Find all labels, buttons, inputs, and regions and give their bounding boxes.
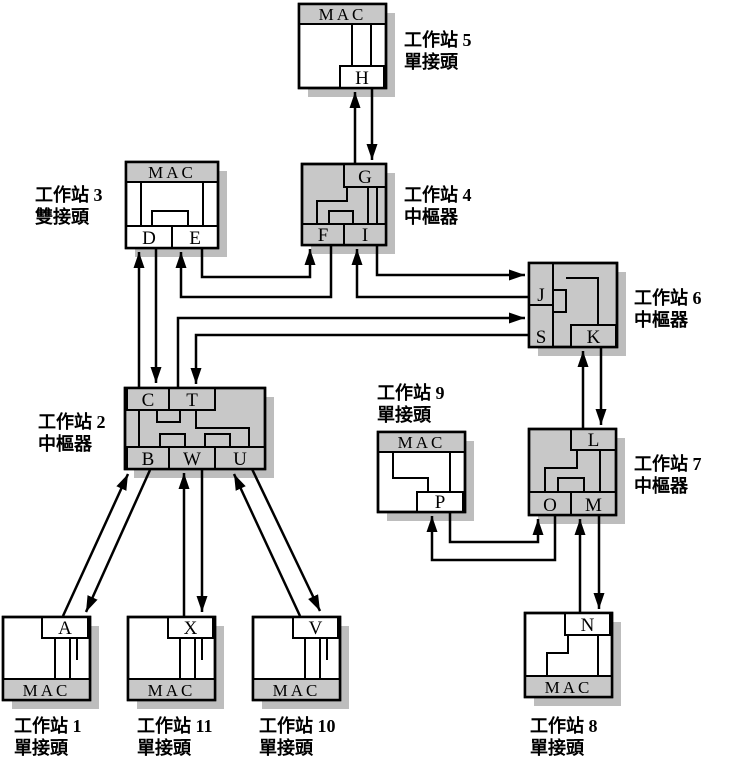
station-ws9-name: 工作站 9	[377, 382, 445, 403]
port-V-label: V	[309, 618, 323, 639]
port-T-label: T	[186, 390, 198, 411]
station-ws6-path-rect	[553, 290, 566, 312]
station-ws5-mac-label: MAC	[319, 5, 367, 24]
port-I-label: I	[362, 225, 368, 246]
station-ws2-type: 中樞器	[38, 433, 93, 454]
station-ws6: JSK	[529, 263, 617, 348]
station-ws10: MACV	[253, 617, 340, 700]
station-ws3-mac-label: MAC	[148, 163, 196, 182]
station-ws3: MACDE	[126, 162, 218, 249]
port-D-label: D	[142, 228, 156, 249]
station-ws2-path-rect	[157, 410, 180, 422]
station-ws11: MACX	[128, 617, 215, 700]
station-ws3-type: 雙接頭	[35, 206, 90, 227]
station-ws1-name: 工作站 1	[14, 715, 82, 736]
station-ws8-type: 單接頭	[530, 737, 585, 758]
station-ws10-mac-label: MAC	[273, 681, 321, 700]
connection-V-to-U-arrow	[234, 474, 300, 616]
port-O-label: O	[543, 495, 557, 516]
station-ws2: CTBWU	[125, 388, 265, 470]
station-ws10-type: 單接頭	[259, 737, 314, 758]
port-K-label: K	[587, 327, 601, 348]
connection-B-to-A-arrow	[86, 470, 150, 612]
station-ws9-type: 單接頭	[377, 404, 432, 425]
port-L-label: L	[588, 430, 600, 451]
station-ws5-type: 單接頭	[404, 51, 459, 72]
station-ws11-name: 工作站 11	[137, 715, 213, 736]
port-W-label: W	[183, 449, 201, 470]
port-J-label: J	[537, 285, 544, 306]
connection-S-to-T-arrow	[196, 335, 529, 384]
port-C-label: C	[142, 390, 155, 411]
station-ws10-name: 工作站 10	[259, 715, 336, 736]
station-ws9: MACP	[378, 432, 465, 513]
port-M-label: M	[585, 495, 602, 516]
station-ws11-type: 單接頭	[137, 737, 192, 758]
station-ws7: LOM	[529, 429, 616, 516]
station-ws3-name: 工作站 3	[35, 184, 103, 205]
connection-J-to-I-arrow	[357, 249, 529, 297]
port-E-label: E	[189, 228, 201, 249]
station-ws4-name: 工作站 4	[404, 184, 472, 205]
connection-A-to-B-arrow	[63, 474, 128, 616]
station-ws3-path-rect	[152, 211, 188, 226]
station-ws11-mac-label: MAC	[148, 681, 196, 700]
station-ws1: MACA	[3, 617, 90, 700]
station-ws7-type: 中樞器	[634, 475, 689, 496]
port-N-label: N	[581, 615, 595, 636]
connection-U-to-V-arrow	[252, 469, 320, 611]
port-G-label: G	[358, 167, 372, 188]
station-ws2-path-rect	[160, 434, 185, 447]
port-A-label: A	[58, 618, 72, 639]
station-ws6-type: 中樞器	[634, 309, 689, 330]
port-F-label: F	[318, 225, 329, 246]
station-ws6-name: 工作站 6	[634, 287, 702, 308]
station-ws7-name: 工作站 7	[634, 453, 702, 474]
port-S-label: S	[536, 327, 547, 348]
port-H-label: H	[355, 68, 369, 89]
station-ws4: GFI	[302, 164, 386, 246]
station-ws5: MACH	[299, 4, 386, 89]
station-ws4-type: 中樞器	[404, 206, 459, 227]
station-ws8-mac-label: MAC	[545, 678, 593, 697]
station-ws5-name: 工作站 5	[404, 29, 472, 50]
fddi-topology-diagram: MACHMACDEGFIJSKCTBWUMACPLOMMACAMACXMACVM…	[0, 0, 729, 767]
station-ws1-type: 單接頭	[14, 737, 69, 758]
port-U-label: U	[233, 449, 247, 470]
station-ws1-mac-label: MAC	[23, 681, 71, 700]
connection-I-to-J-arrow	[377, 245, 525, 275]
port-P-label: P	[435, 492, 446, 513]
station-ws4-path-rect	[329, 211, 353, 224]
station-ws2-path-rect	[205, 434, 230, 447]
connection-T-to-S-arrow	[178, 318, 525, 387]
station-ws7-path-rect	[558, 478, 584, 492]
port-X-label: X	[184, 618, 198, 639]
station-ws8: MACN	[525, 613, 612, 697]
port-B-label: B	[142, 449, 155, 470]
station-ws9-mac-label: MAC	[398, 433, 446, 452]
topology-svg: MACHMACDEGFIJSKCTBWUMACPLOMMACAMACXMACVM…	[0, 0, 729, 767]
station-ws2-name: 工作站 2	[38, 411, 106, 432]
station-ws8-name: 工作站 8	[530, 715, 598, 736]
